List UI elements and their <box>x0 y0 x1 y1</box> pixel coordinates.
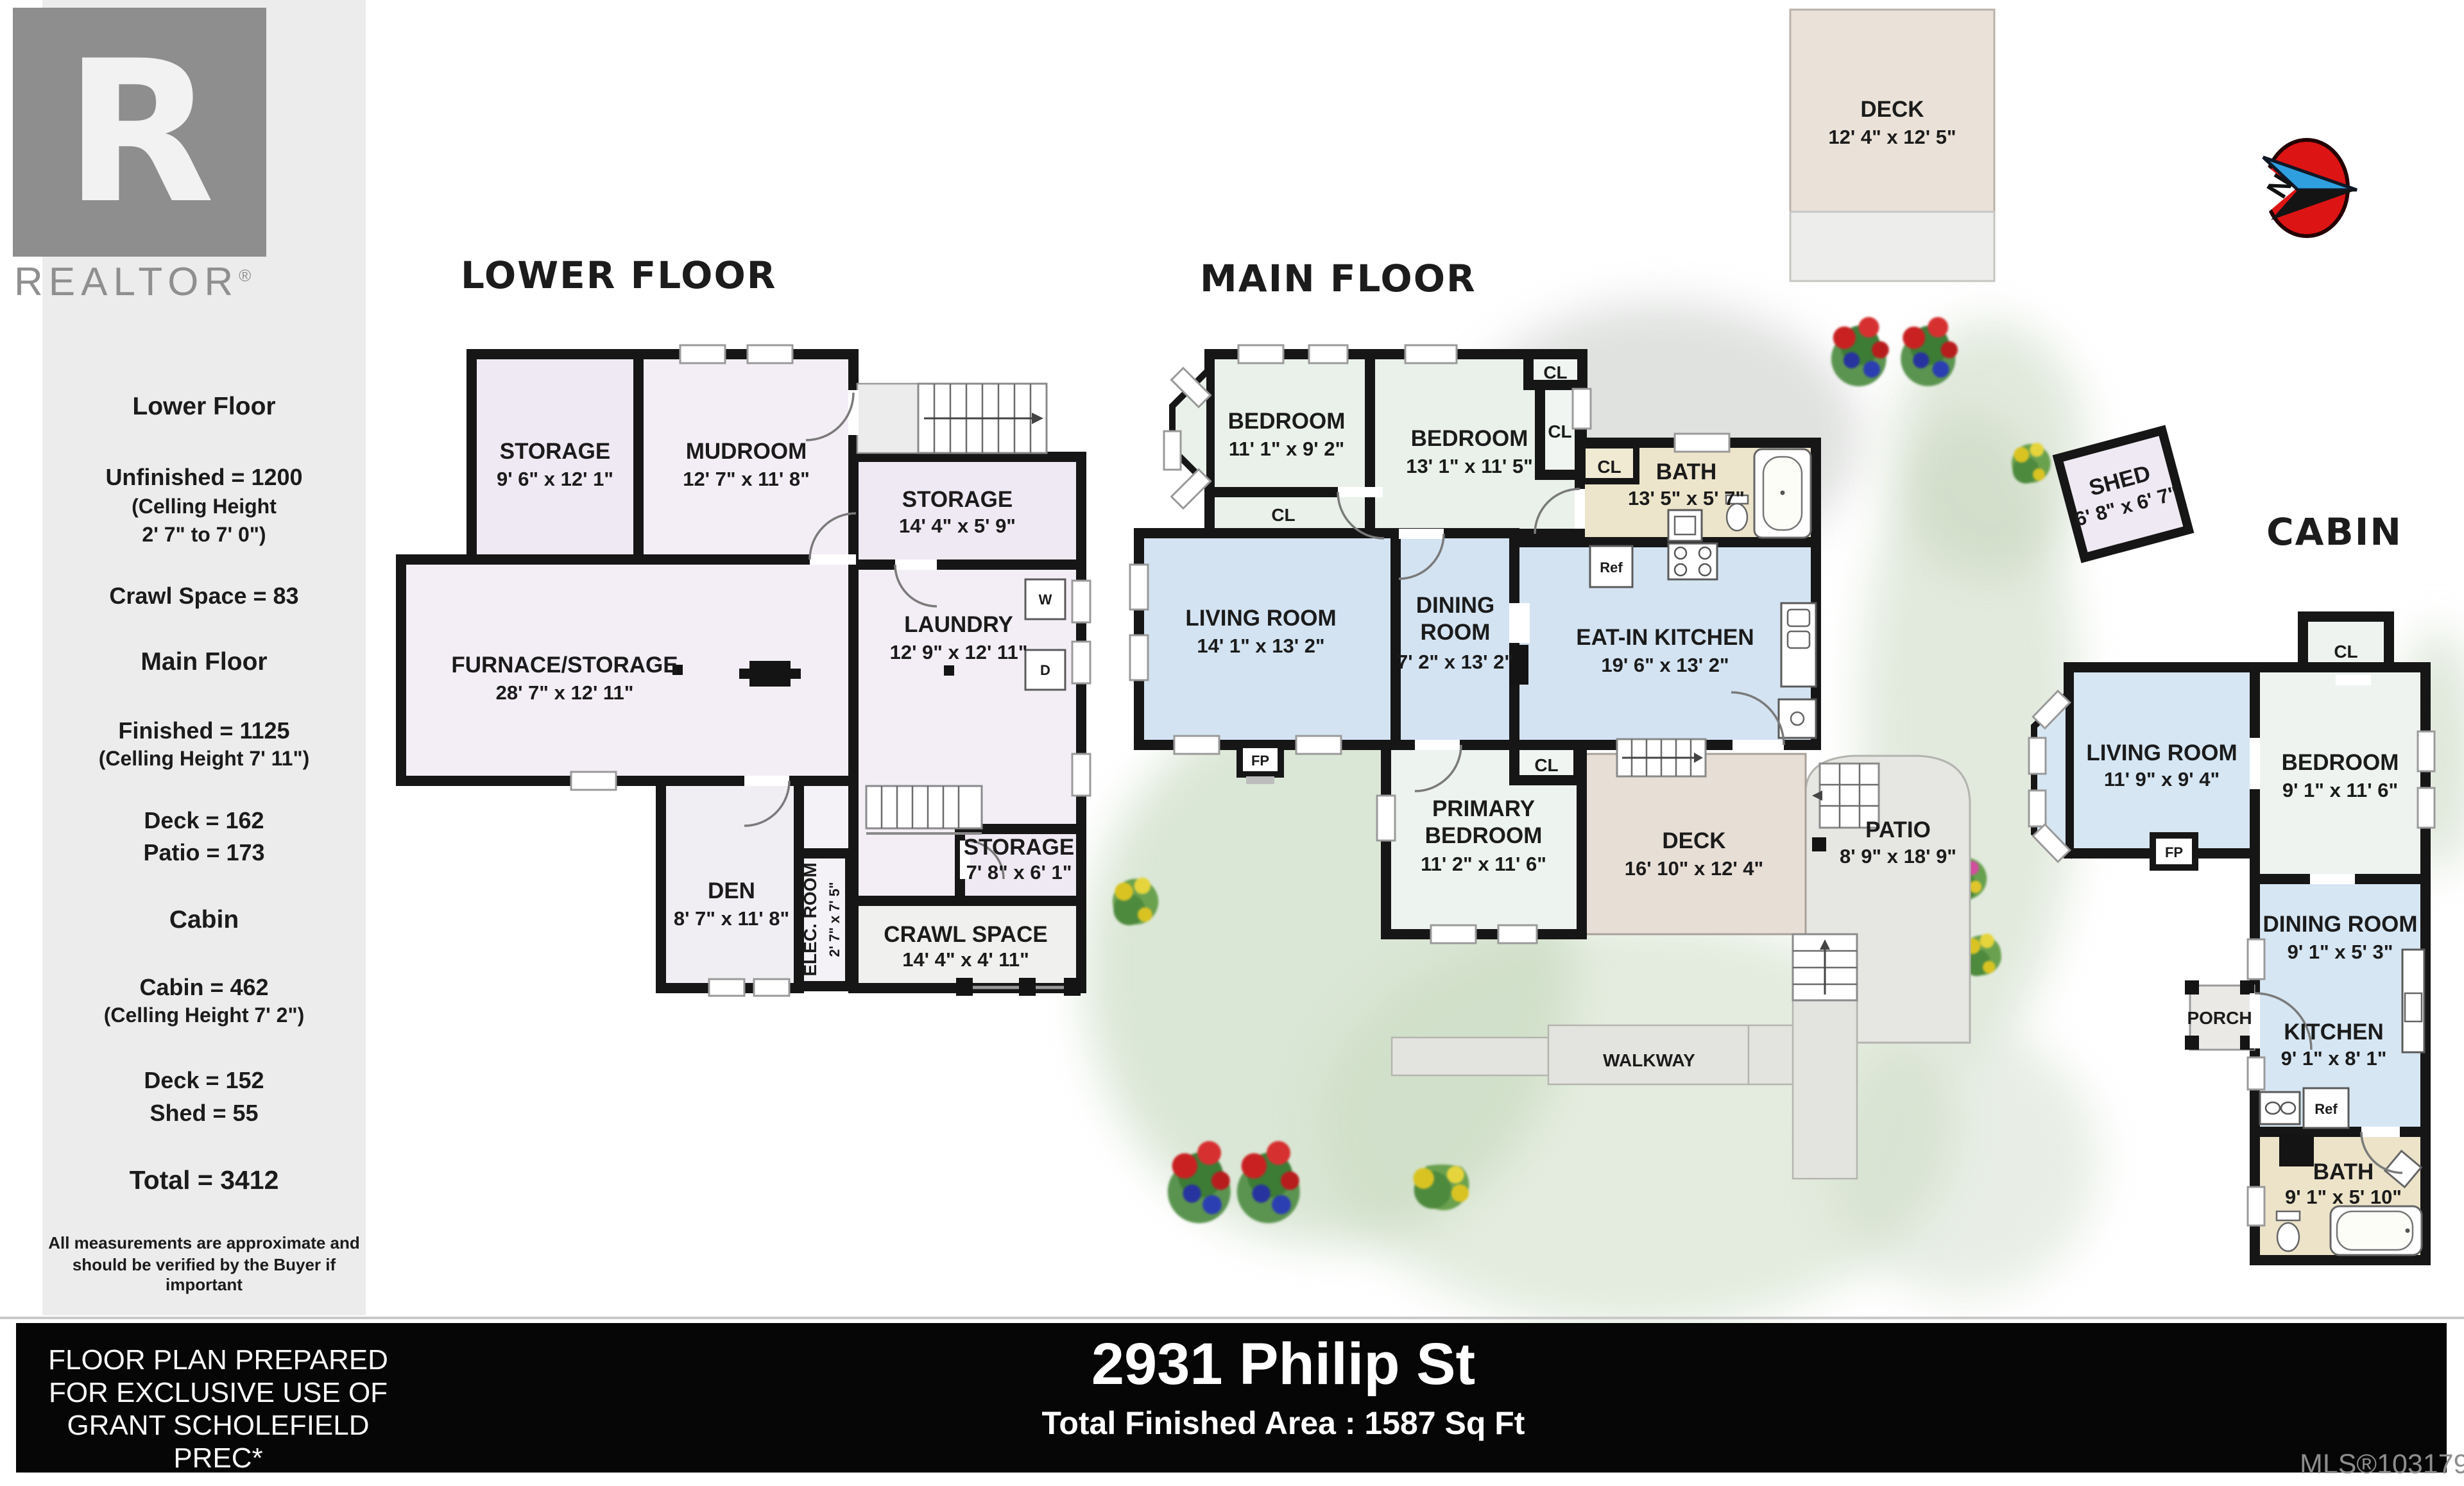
closet-label: CL <box>1534 755 1558 775</box>
prepared-line-2: FOR EXCLUSIVE USE OF <box>19 1376 417 1409</box>
cabin-bath-name: BATH <box>2313 1159 2374 1184</box>
furnace-name: FURNACE/STORAGE <box>451 653 678 678</box>
cabin-counter-sink <box>2402 950 2424 1052</box>
realtor-logo: R <box>13 8 266 257</box>
sidebar-cabin-deck: Deck = 152 <box>42 1067 366 1094</box>
title-main-floor: MAIN FLOOR <box>1200 257 1476 300</box>
sidebar-main-patio: Patio = 173 <box>42 839 366 866</box>
walkway-surface <box>1392 1000 1857 1179</box>
upper-deck-dims: 12' 4" x 12' 5" <box>1828 126 1956 148</box>
fireplace-label: FP <box>1251 753 1269 769</box>
kitchen-dims: 19' 6" x 13' 2" <box>1601 654 1729 676</box>
stairs-to-lower-hall <box>866 786 982 833</box>
crawl-name: CRAWL SPACE <box>884 922 1047 947</box>
lower-floor-plan: W D STORAGE 9' 6" x 12' 1" MUDROOM 12' 7… <box>385 334 1104 1014</box>
sidebar-cabin-title: Cabin <box>42 906 366 934</box>
living-name: LIVING ROOM <box>1185 606 1336 631</box>
bedroom2-name: BEDROOM <box>1411 426 1528 451</box>
floorplan-page: R REALTOR® Lower Floor Unfinished = 1200… <box>0 0 2464 1486</box>
cabin-living-name: LIVING ROOM <box>2086 740 2237 765</box>
kitchen-sink-counter <box>1779 603 1816 738</box>
cabin-toilet-icon <box>2277 1211 2300 1251</box>
realtor-wordmark: REALTOR® <box>14 259 296 305</box>
mudroom-name: MUDROOM <box>686 439 807 464</box>
storage2-dims: 14' 4" x 5' 9" <box>899 515 1016 537</box>
cabin-bath-dims: 9' 1" x 5' 10" <box>2285 1186 2402 1208</box>
primary-name-2: BEDROOM <box>1425 823 1543 848</box>
sidebar-main-finished: Finished = 1125 <box>42 717 366 744</box>
cabin-chimney-block <box>2279 1134 2314 1166</box>
footer-center: 2931 Philip St Total Finished Area : 158… <box>898 1333 1668 1442</box>
closet-label: CL <box>2334 642 2357 662</box>
mls-number: MLS®1031793 <box>2300 1449 2464 1480</box>
patio-name: PATIO <box>1865 817 1931 842</box>
registered-mark: ® <box>239 266 251 285</box>
deck-stairs <box>1793 934 1857 1000</box>
fireplace-label: FP <box>2165 844 2183 860</box>
kitchen-name: EAT-IN KITCHEN <box>1576 625 1754 650</box>
footer-prepared-note: FLOOR PLAN PREPARED FOR EXCLUSIVE USE OF… <box>19 1344 417 1474</box>
sidebar-cabin-ceiling: (Celling Height 7' 2") <box>42 1003 366 1027</box>
sidebar-main-deck: Deck = 162 <box>42 807 366 834</box>
living-dims: 14' 1" x 13' 2" <box>1197 635 1324 657</box>
sidebar-lower-ceiling-2: 2' 7" to 7' 0") <box>42 523 366 547</box>
fridge-label: Ref <box>2314 1101 2338 1117</box>
bath-sink-icon <box>1668 510 1702 541</box>
cabin-porch-label: PORCH <box>2187 1008 2252 1028</box>
cabin-bedroom-name: BEDROOM <box>2282 750 2399 775</box>
storage3-dims: 7' 8" x 6' 1" <box>966 861 1072 884</box>
bath-dims: 13' 5" x 5' 7" <box>1628 487 1745 509</box>
stove-icon <box>1668 543 1717 579</box>
closet-label: CL <box>1271 505 1295 525</box>
sidebar-cabin-shed: Shed = 55 <box>42 1100 366 1127</box>
closet-label: CL <box>1548 422 1571 441</box>
property-address: 2931 Philip St <box>898 1333 1668 1396</box>
laundry-dims: 12' 9" x 12' 11" <box>890 641 1028 663</box>
cabin-bedroom-dims: 9' 1" x 11' 6" <box>2282 779 2398 801</box>
stairs-to-main <box>857 384 1047 453</box>
sidebar-disclaimer-2: should be verified by the Buyer if impor… <box>42 1255 366 1295</box>
dryer-label: D <box>1040 662 1050 678</box>
laundry-name: LAUNDRY <box>904 612 1013 637</box>
sidebar-main-title: Main Floor <box>42 648 366 676</box>
main-floor-plan: FP Ref <box>1116 295 2015 1206</box>
bedroom1-name: BEDROOM <box>1228 409 1346 434</box>
compass-rose: N <box>2255 132 2390 247</box>
storage1-dims: 9' 6" x 12' 1" <box>497 468 613 490</box>
upper-deck-label: DECK <box>1860 97 1924 122</box>
sidebar-main-ceiling: (Celling Height 7' 11") <box>42 747 366 771</box>
patio-dims: 8' 9" x 18' 9" <box>1840 845 1956 867</box>
dining-dims: 7' 2" x 13' 2" <box>1397 651 1514 673</box>
washer-label: W <box>1039 592 1052 608</box>
upper-deck-landing <box>1790 212 1994 281</box>
sidebar-lower-title: Lower Floor <box>42 393 366 421</box>
walkway-label: WALKWAY <box>1603 1050 1695 1070</box>
cabin-stove-icon <box>2260 1092 2300 1124</box>
total-finished-area: Total Finished Area : 1587 Sq Ft <box>898 1405 1668 1442</box>
room-hall <box>799 781 853 853</box>
prepared-line-3: GRANT SCHOLEFIELD PREC* <box>19 1409 417 1474</box>
prepared-line-1: FLOOR PLAN PREPARED <box>19 1344 417 1376</box>
cabin-kitchen-name: KITCHEN <box>2284 1020 2384 1045</box>
furnace-dims: 28' 7" x 12' 11" <box>496 681 634 704</box>
bedroom2-dims: 13' 1" x 11' 5" <box>1406 455 1533 477</box>
sidebar-crawl-space: Crawl Space = 83 <box>42 583 366 610</box>
cabin-dining-name: DINING ROOM <box>2263 912 2417 937</box>
fridge-label: Ref <box>1600 559 1623 576</box>
bedroom1-dims: 11' 1" x 9' 2" <box>1229 438 1344 460</box>
realtor-logo-letter: R <box>64 35 215 230</box>
title-cabin: CABIN <box>2206 510 2463 554</box>
storage1-name: STORAGE <box>500 439 610 464</box>
title-lower-floor: LOWER FLOOR <box>461 253 776 297</box>
sidebar-cabin-area: Cabin = 462 <box>42 974 366 1001</box>
shed: SHED 6' 8" x 6' 7" <box>2058 431 2189 558</box>
bathtub-icon <box>1754 449 1811 538</box>
primary-name-1: PRIMARY <box>1432 796 1535 821</box>
deck-name: DECK <box>1662 828 1725 853</box>
bath-name: BATH <box>1656 459 1717 484</box>
dining-name-1: DINING <box>1416 593 1495 618</box>
den-name: DEN <box>708 878 755 903</box>
cabin-tub-icon <box>2331 1206 2422 1255</box>
upper-deck-plan: DECK 12' 4" x 12' 5" <box>1784 6 2002 289</box>
sidebar-lower-unfinished: Unfinished = 1200 <box>42 464 366 491</box>
cabin-kitchen-dims: 9' 1" x 8' 1" <box>2281 1047 2387 1070</box>
storage2-name: STORAGE <box>902 487 1013 512</box>
elec-dims: 2' 7" x 7' 5" <box>826 882 843 957</box>
den-dims: 8' 7" x 11' 8" <box>674 907 789 930</box>
primary-dims: 11' 2" x 11' 6" <box>1421 853 1546 875</box>
mudroom-dims: 12' 7" x 11' 8" <box>683 468 810 490</box>
sidebar-lower-ceiling-1: (Celling Height <box>42 495 366 518</box>
dining-name-2: ROOM <box>1421 620 1491 645</box>
storage3-name: STORAGE <box>964 835 1074 860</box>
stairs-down <box>1617 739 1706 776</box>
sidebar-total: Total = 3412 <box>42 1165 366 1195</box>
closet-label: CL <box>1597 457 1621 477</box>
deck-dims: 16' 10" x 12' 4" <box>1625 857 1764 880</box>
crawl-dims: 14' 4" x 4' 11" <box>902 948 1029 971</box>
cabin-dining-dims: 9' 1" x 5' 3" <box>2288 941 2393 963</box>
footer-divider <box>0 1317 2464 1319</box>
deck-post <box>1812 837 1826 851</box>
sidebar-disclaimer-1: All measurements are approximate and <box>42 1233 366 1253</box>
elec-name: ELEC. ROOM <box>800 862 820 976</box>
cabin-living-dims: 11' 9" x 9' 4" <box>2104 768 2220 790</box>
closet-label: CL <box>1543 363 1567 382</box>
